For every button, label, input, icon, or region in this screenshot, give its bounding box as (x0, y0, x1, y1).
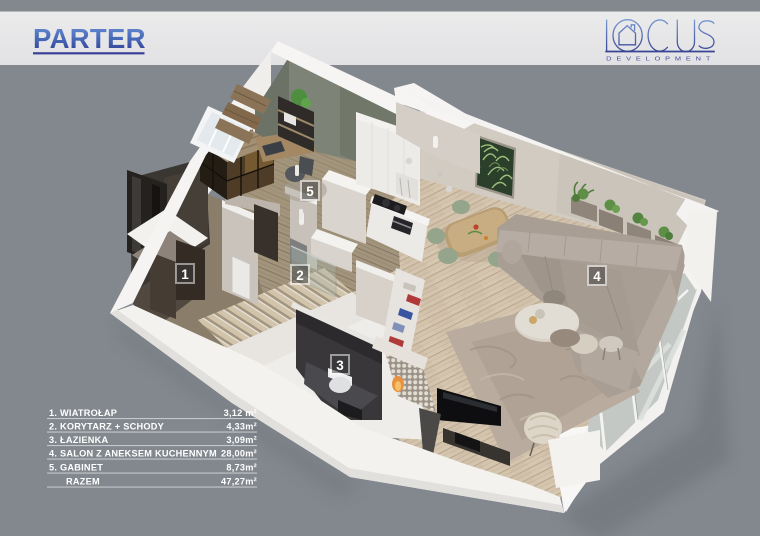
svg-text:RAZEM: RAZEM (66, 477, 100, 487)
svg-text:PARTER: PARTER (33, 23, 146, 54)
svg-text:4. SALON Z ANEKSEM KUCHENNYM: 4. SALON Z ANEKSEM KUCHENNYM (49, 449, 217, 459)
svg-text:3,12 m²: 3,12 m² (224, 408, 257, 418)
svg-text:3. ŁAZIENKA: 3. ŁAZIENKA (49, 435, 109, 445)
svg-text:1. WIATROŁAP: 1. WIATROŁAP (49, 408, 117, 418)
svg-text:5: 5 (306, 184, 314, 199)
svg-text:2. KORYTARZ + SCHODY: 2. KORYTARZ + SCHODY (49, 422, 164, 432)
svg-text:28,00m²: 28,00m² (221, 449, 257, 459)
svg-text:3: 3 (336, 358, 344, 373)
svg-text:4,33m²: 4,33m² (226, 422, 257, 432)
svg-text:47,27m²: 47,27m² (221, 477, 257, 487)
svg-text:3,09m²: 3,09m² (226, 435, 257, 445)
svg-text:2: 2 (296, 268, 304, 283)
svg-text:4: 4 (593, 269, 601, 284)
svg-text:8,73m²: 8,73m² (226, 463, 257, 473)
svg-text:DEVELOPMENT: DEVELOPMENT (606, 57, 715, 63)
svg-text:5. GABINET: 5. GABINET (49, 463, 103, 473)
svg-text:1: 1 (181, 267, 189, 282)
